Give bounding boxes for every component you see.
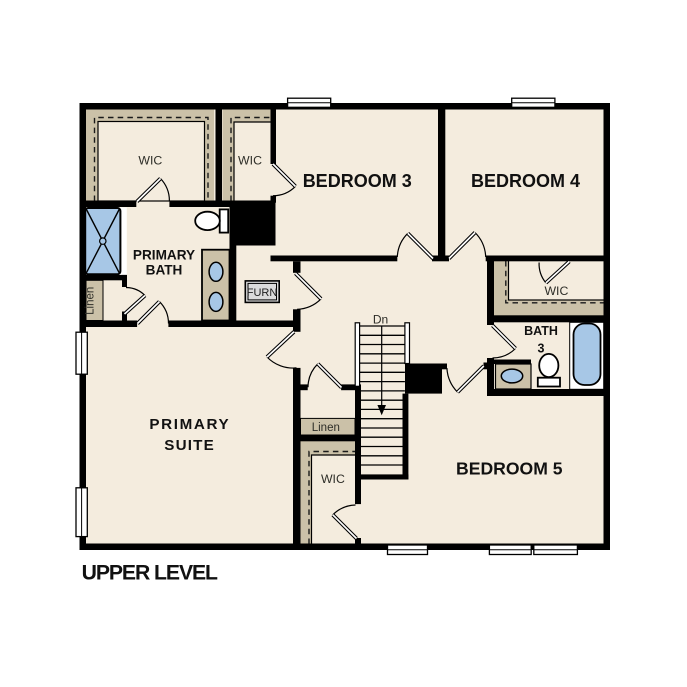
svg-text:UPPER LEVEL: UPPER LEVEL bbox=[82, 562, 218, 585]
svg-text:BATH: BATH bbox=[146, 263, 183, 278]
svg-text:WIC: WIC bbox=[138, 154, 162, 168]
svg-text:Dn: Dn bbox=[373, 313, 388, 327]
svg-text:WIC: WIC bbox=[544, 284, 568, 298]
svg-text:3: 3 bbox=[538, 342, 545, 356]
svg-text:WIC: WIC bbox=[238, 154, 262, 168]
svg-text:BEDROOM 3: BEDROOM 3 bbox=[303, 171, 412, 191]
svg-text:PRIMARY: PRIMARY bbox=[133, 248, 195, 263]
svg-text:WIC: WIC bbox=[321, 472, 345, 486]
svg-text:BATH: BATH bbox=[524, 324, 558, 338]
svg-text:SUITE: SUITE bbox=[164, 437, 214, 454]
svg-text:PRIMARY: PRIMARY bbox=[149, 416, 228, 433]
svg-text:Linen: Linen bbox=[85, 287, 97, 315]
svg-text:FURN: FURN bbox=[247, 287, 278, 299]
svg-text:Linen: Linen bbox=[312, 422, 340, 434]
svg-text:BEDROOM 5: BEDROOM 5 bbox=[456, 458, 563, 478]
svg-text:BEDROOM 4: BEDROOM 4 bbox=[471, 171, 580, 191]
